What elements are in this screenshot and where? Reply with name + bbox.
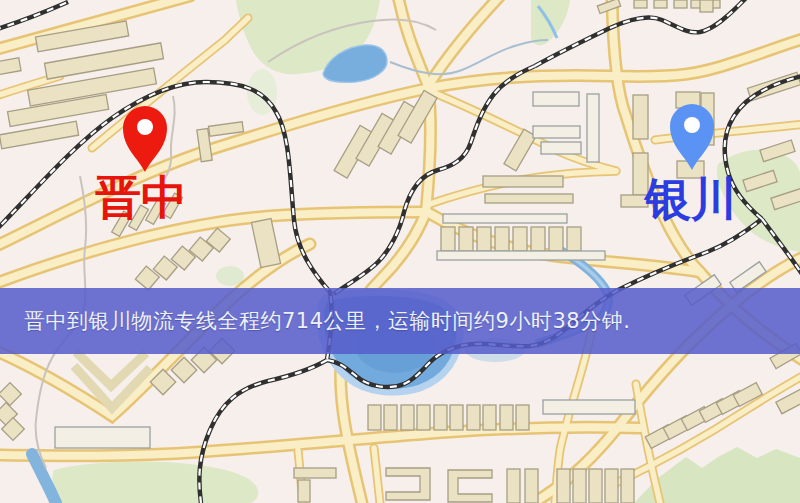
origin-label: 晋中 xyxy=(95,170,187,224)
route-banner-text: 晋中到银川物流专线全程约714公里，运输时间约9小时38分钟. xyxy=(24,307,630,335)
destination-label: 银川 xyxy=(643,172,737,226)
route-banner: 晋中到银川物流专线全程约714公里，运输时间约9小时38分钟. xyxy=(0,288,800,354)
map-image: 晋中 银川 晋中到银川物流专线全程约714公里，运输时间约9小时38分钟. xyxy=(0,0,800,503)
map-canvas: 晋中 银川 xyxy=(0,0,800,503)
